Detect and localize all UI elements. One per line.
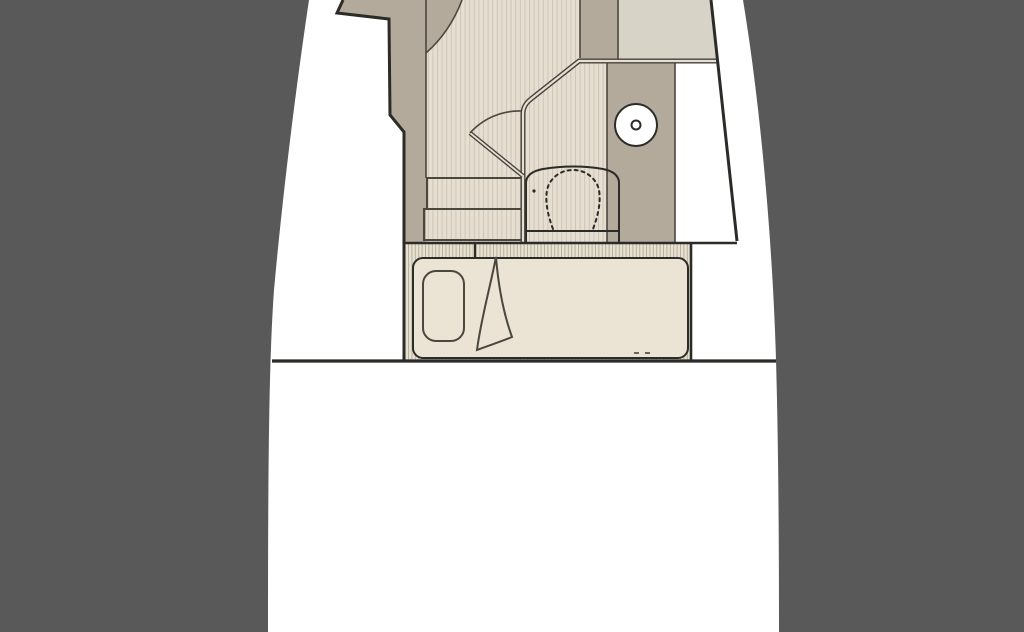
forward-berth-quad	[618, 0, 717, 59]
mattress	[413, 258, 688, 358]
sink-drain	[632, 121, 641, 130]
deck-plan-drawing	[0, 0, 1024, 632]
deck-plan-canvas	[0, 0, 1024, 632]
forward-bulkhead-strip	[580, 0, 618, 59]
forward-berth-bed	[413, 257, 688, 358]
flush-button	[532, 189, 535, 192]
side-cabinet	[607, 61, 675, 243]
